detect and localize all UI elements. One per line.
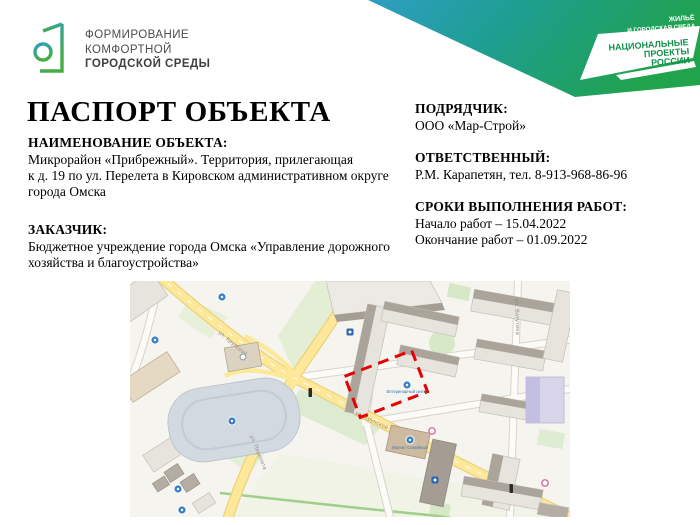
street-label-vatutina: ул. Ватутина (513, 299, 520, 336)
responsible-heading: ОТВЕТСТВЕННЫЙ: (415, 150, 693, 166)
contractor-text: ООО «Мар-Строй» (415, 118, 693, 134)
poi-icon-gray (239, 353, 247, 361)
fkgs-line2: КОМФОРТНОЙ (85, 43, 210, 58)
work-start-text: Начало работ – 15.04.2022 (415, 216, 693, 232)
poi-label-magnit: Магнит Семейный (392, 445, 428, 450)
customer-text: Бюджетное учреждение города Омска «Управ… (28, 239, 410, 271)
poi-label-vet-center: Ветеринарный центр (387, 389, 429, 394)
left-column: НАИМЕНОВАНИЕ ОБЪЕКТА: Микрорайон «Прибре… (28, 135, 410, 286)
customer-section: ЗАКАЗЧИК: Бюджетное учреждение города Ом… (28, 222, 410, 271)
work-dates-section: СРОКИ ВЫПОЛНЕНИЯ РАБОТ: Начало работ – 1… (415, 199, 693, 248)
right-column: ПОДРЯДЧИК: ООО «Мар-Строй» ОТВЕТСТВЕННЫЙ… (415, 101, 693, 264)
responsible-text: Р.М. Карапетян, тел. 8-913-968-86-96 (415, 167, 693, 183)
fkgs-logo: ФОРМИРОВАНИЕ КОМФОРТНОЙ ГОРОДСКОЙ СРЕДЫ (28, 20, 210, 80)
object-name-text: Микрорайон «Прибрежный». Территория, при… (28, 152, 410, 200)
fkgs-logo-icon (28, 20, 74, 80)
object-name-heading: НАИМЕНОВАНИЕ ОБЪЕКТА: (28, 135, 410, 151)
fkgs-line1: ФОРМИРОВАНИЕ (85, 28, 210, 43)
customer-heading: ЗАКАЗЧИК: (28, 222, 410, 238)
fkgs-line3: ГОРОДСКОЙ СРЕДЫ (85, 57, 210, 72)
fkgs-logo-text: ФОРМИРОВАНИЕ КОМФОРТНОЙ ГОРОДСКОЙ СРЕДЫ (85, 28, 210, 72)
object-name-section: НАИМЕНОВАНИЕ ОБЪЕКТА: Микрорайон «Прибре… (28, 135, 410, 200)
work-dates-heading: СРОКИ ВЫПОЛНЕНИЯ РАБОТ: (415, 199, 693, 215)
object-passport-poster: ЖИЛЬЁ И ГОРОДСКАЯ СРЕДА НАЦИОНАЛЬНЫЕ ПРО… (0, 0, 700, 525)
contractor-heading: ПОДРЯДЧИК: (415, 101, 693, 117)
page-title: ПАСПОРТ ОБЪЕКТА (27, 96, 331, 129)
responsible-section: ОТВЕТСТВЕННЫЙ: Р.М. Карапетян, тел. 8-91… (415, 150, 693, 183)
contractor-section: ПОДРЯДЧИК: ООО «Мар-Строй» (415, 101, 693, 134)
location-map: ул. Крупской ул. Крупской ул. Перелета у… (130, 281, 570, 517)
work-end-text: Окончание работ – 01.09.2022 (415, 232, 693, 248)
